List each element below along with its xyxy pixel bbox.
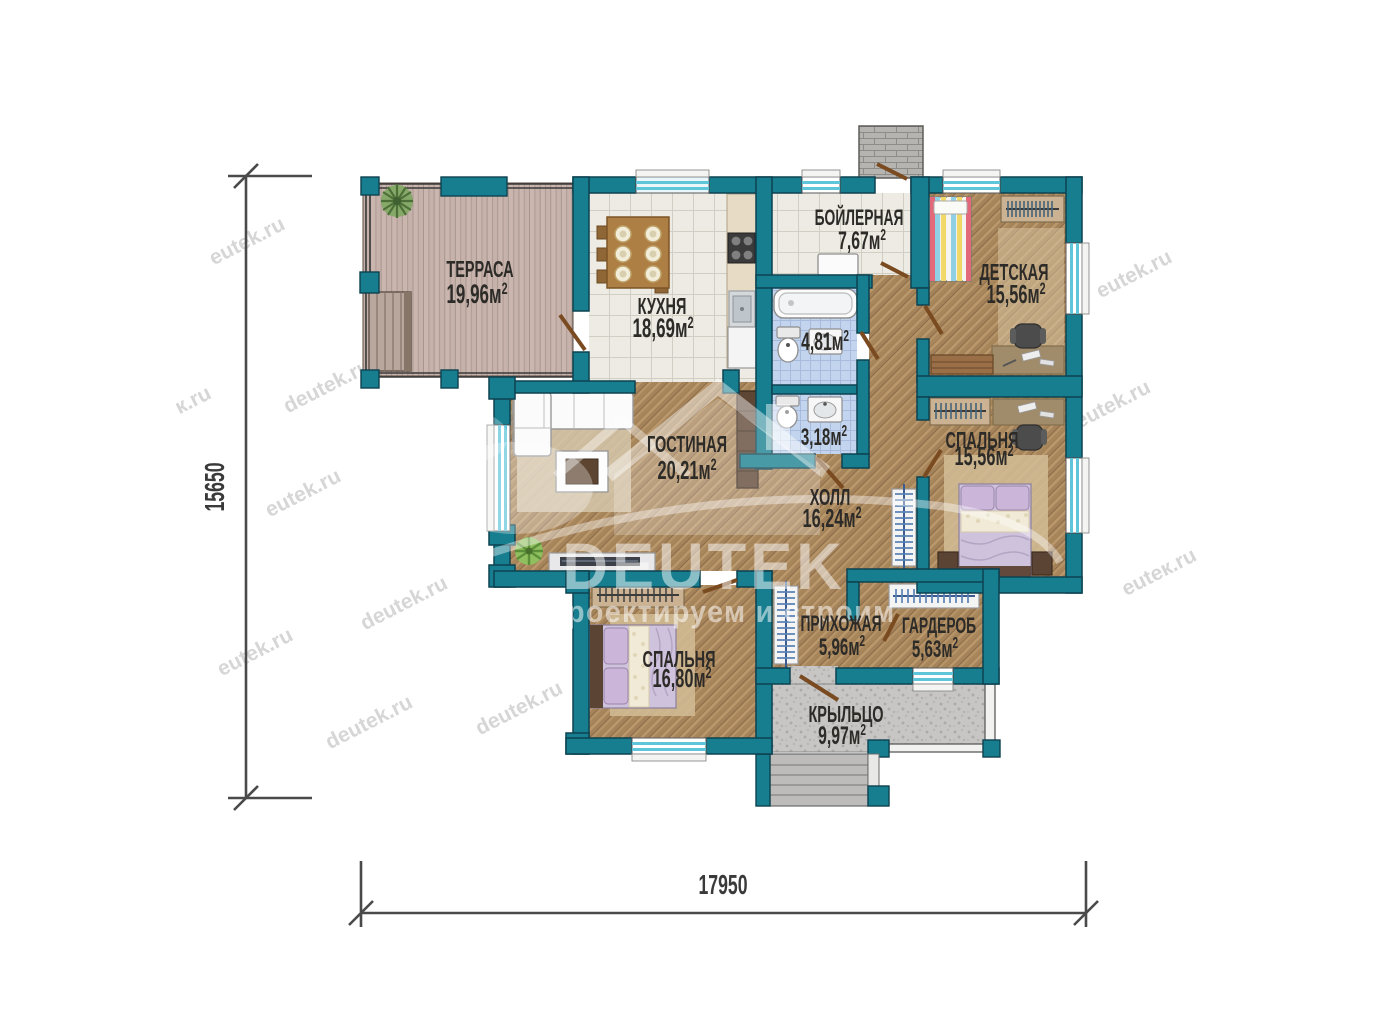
svg-text:3,18м2: 3,18м2 [801, 422, 847, 451]
svg-text:9,97м2: 9,97м2 [818, 721, 866, 750]
svg-text:4,81м2: 4,81м2 [801, 327, 849, 356]
svg-text:5,63м2: 5,63м2 [912, 634, 958, 663]
svg-text:ПРИХОЖАЯ: ПРИХОЖАЯ [800, 611, 881, 636]
svg-text:БОЙЛЕРНАЯ: БОЙЛЕРНАЯ [815, 205, 904, 230]
svg-text:7,67м2: 7,67м2 [838, 226, 886, 255]
svg-text:17950: 17950 [698, 869, 747, 900]
svg-text:15,56м2: 15,56м2 [986, 279, 1045, 309]
svg-text:DEUTEK: DEUTEK [562, 529, 846, 603]
svg-text:18,69м2: 18,69м2 [632, 313, 693, 343]
svg-text:ГАРДЕРОБ: ГАРДЕРОБ [902, 613, 976, 638]
svg-text:20,21м2: 20,21м2 [657, 455, 716, 485]
svg-text:16,24м2: 16,24м2 [802, 503, 861, 533]
svg-text:15,56м2: 15,56м2 [954, 441, 1013, 471]
svg-text:5,96м2: 5,96м2 [819, 632, 865, 661]
svg-text:16,80м2: 16,80м2 [652, 663, 711, 693]
svg-text:15650: 15650 [199, 462, 230, 511]
svg-text:19,96м2: 19,96м2 [446, 279, 507, 309]
